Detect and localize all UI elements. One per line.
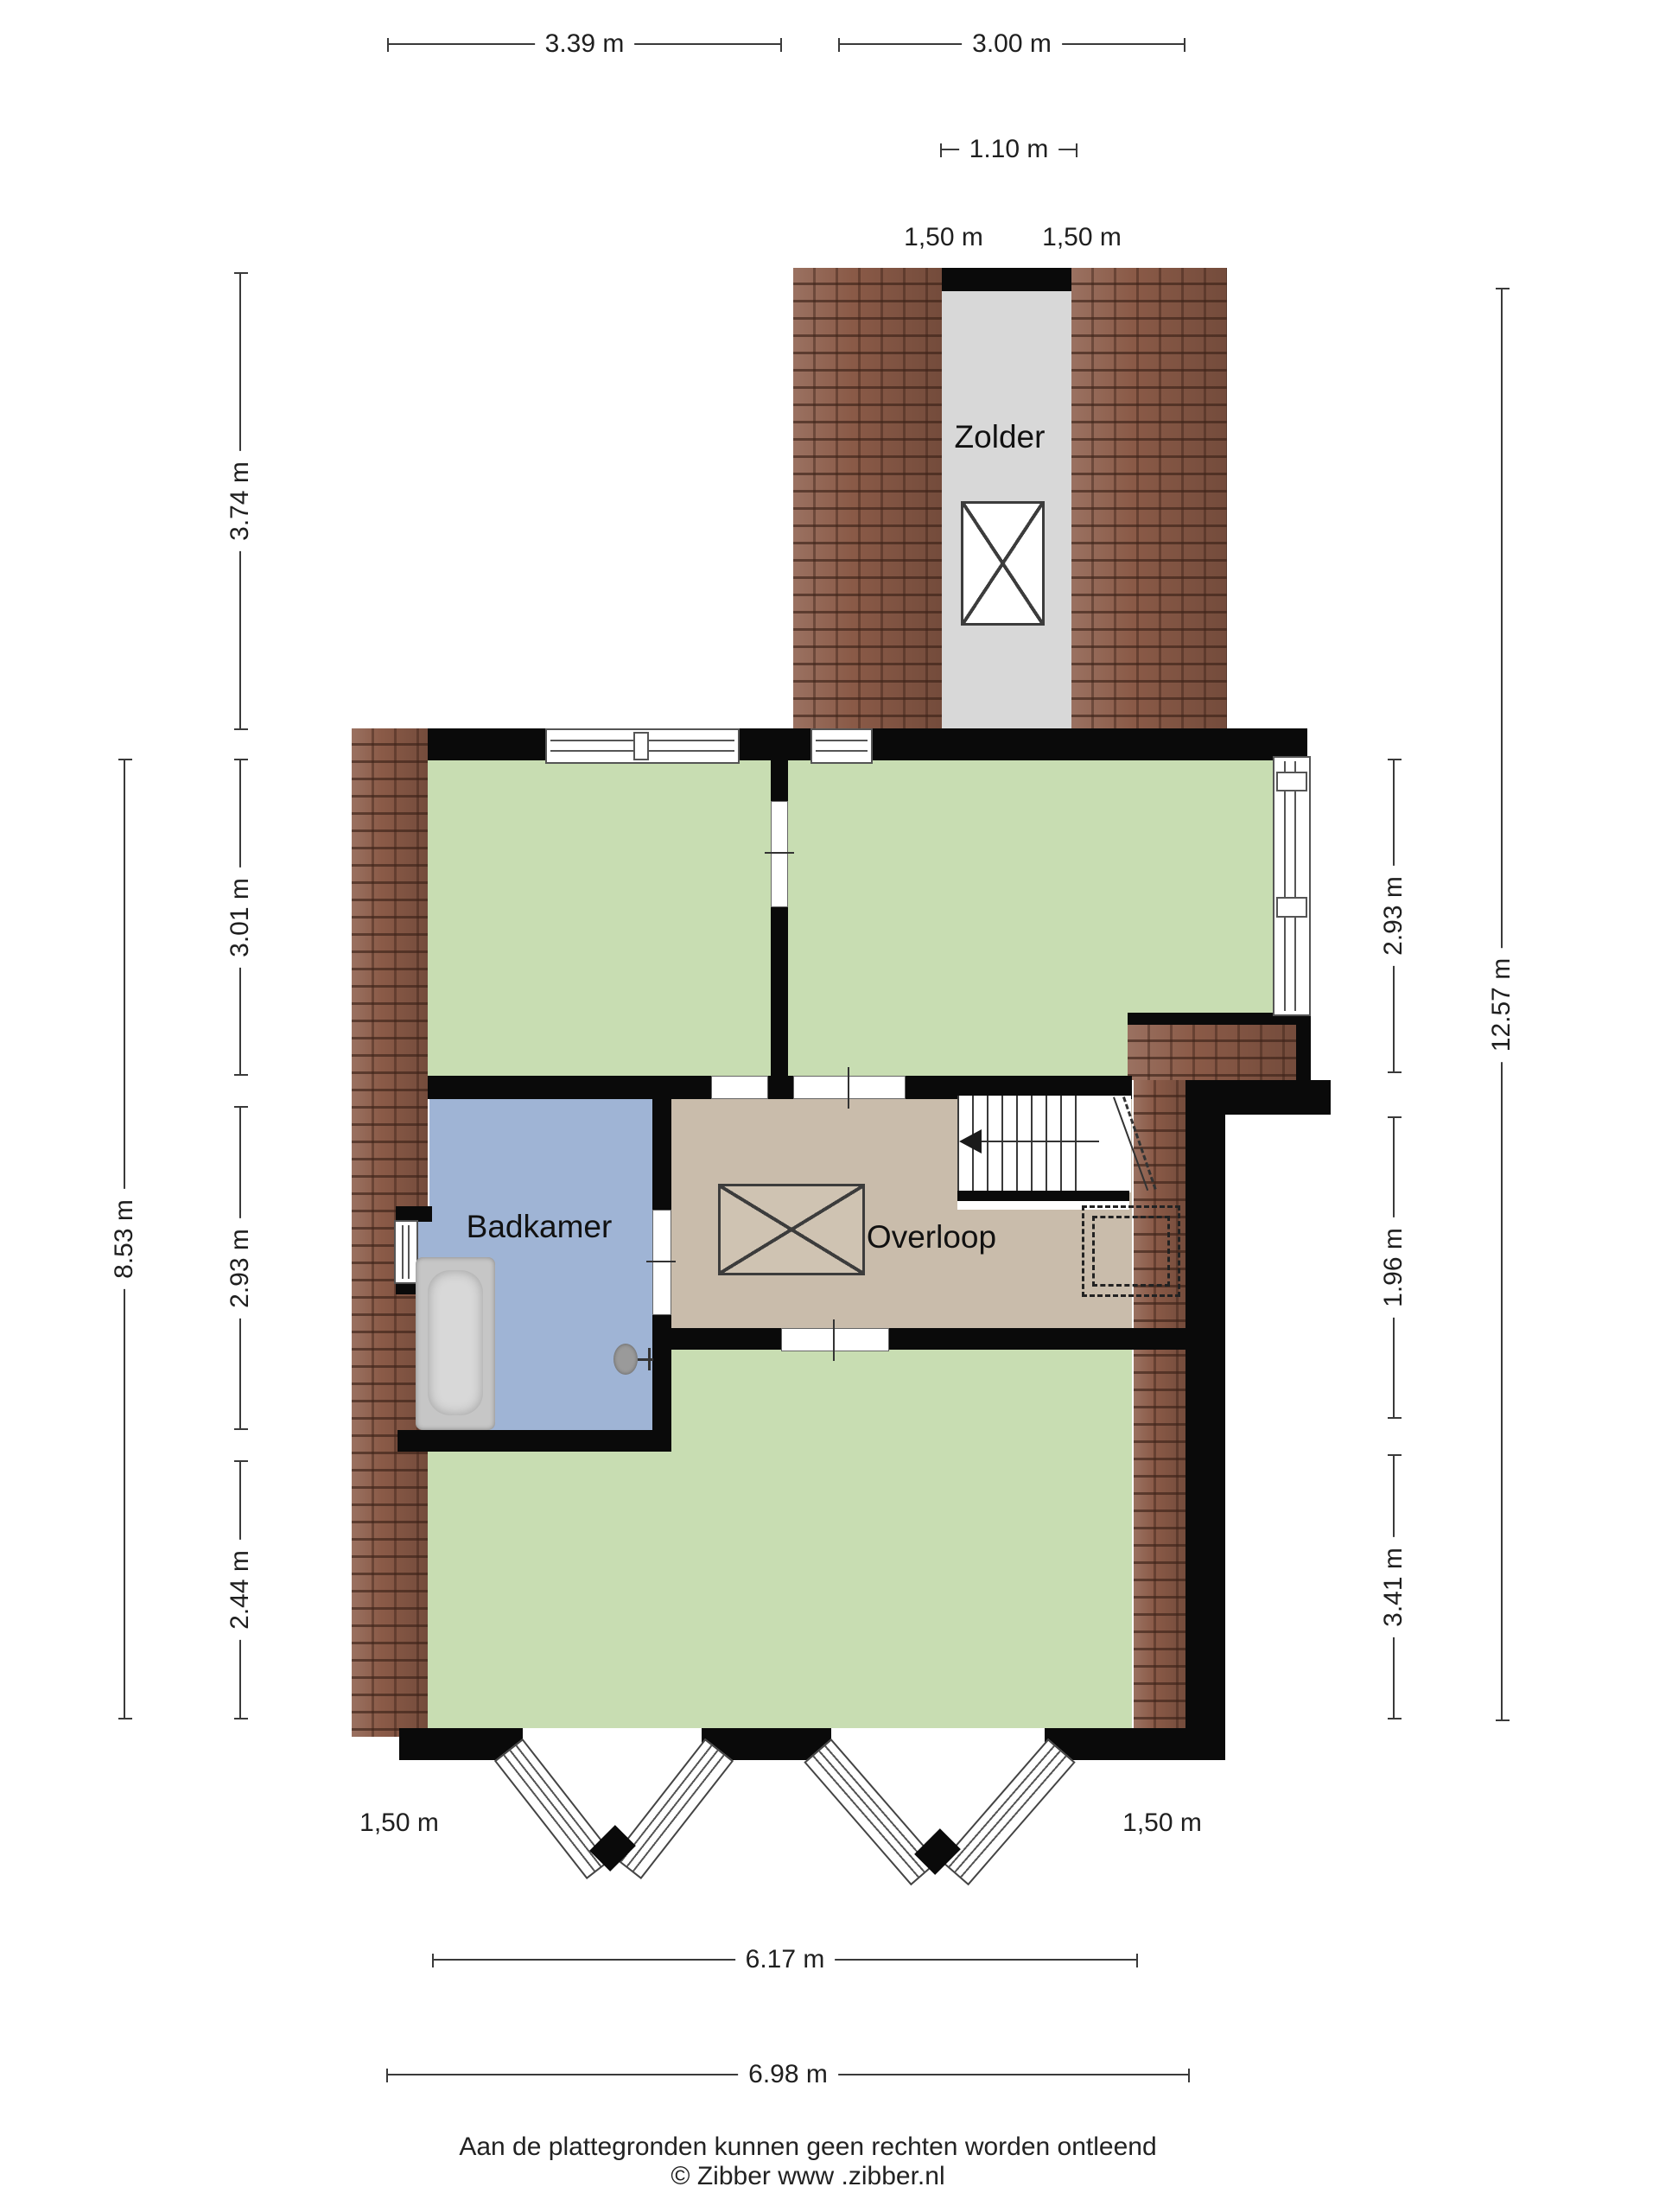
dim-label: 2.44 m xyxy=(226,1540,255,1640)
roof-zolder-right xyxy=(1071,268,1227,730)
dim-label: 3.74 m xyxy=(226,451,255,551)
wall-badkamer-bottom xyxy=(397,1430,671,1452)
room-label-badkamer: Badkamer xyxy=(467,1209,613,1245)
wall-right-lower xyxy=(1185,1115,1225,1737)
dim-bottom-roof-left: 1,50 m xyxy=(359,1808,439,1838)
footer-copyright: © Zibber www .zibber.nl xyxy=(671,2162,944,2191)
skylight-x xyxy=(718,1184,865,1275)
room-bedroom-left xyxy=(428,759,771,1076)
door-tick xyxy=(765,852,794,854)
door-tick xyxy=(646,1261,676,1262)
dim-zolder-roof-left: 1,50 m xyxy=(904,223,983,252)
window-badkamer xyxy=(394,1220,418,1284)
dim-left-244: 2.44 m xyxy=(239,1460,241,1719)
dim-bottom-roof-right: 1,50 m xyxy=(1122,1808,1202,1838)
door-bedroom-left xyxy=(711,1076,768,1099)
footer-disclaimer: Aan de plattegronden kunnen geen rechten… xyxy=(459,2133,1156,2162)
roof-zolder-left xyxy=(793,268,942,730)
bathtub-inner xyxy=(428,1270,483,1415)
door-bedroom-bottom xyxy=(781,1328,889,1351)
dim-top-left: 3.39 m xyxy=(387,43,782,45)
dim-left-293: 2.93 m xyxy=(239,1106,241,1430)
dim-label: 8.53 m xyxy=(110,1189,139,1289)
dim-left-374: 3.74 m xyxy=(239,272,241,730)
dim-label: 2.93 m xyxy=(226,1218,255,1319)
window-right-tall xyxy=(1273,756,1311,1016)
washbasin-tap-cross xyxy=(648,1348,651,1370)
dim-zolder-width: 1.10 m xyxy=(940,149,1077,150)
roof-notch-band xyxy=(1128,1025,1296,1080)
window-top-small xyxy=(810,728,873,764)
wall-step-out xyxy=(1185,1080,1331,1115)
dim-label: 3.01 m xyxy=(226,868,255,968)
wall-overloop-bottom xyxy=(671,1328,1225,1350)
dim-label: 6.17 m xyxy=(735,1945,836,1974)
stairs-direction-line xyxy=(981,1141,1099,1142)
door-tick xyxy=(833,1319,835,1361)
window-mullion xyxy=(1276,772,1307,791)
window-mullion xyxy=(633,732,649,760)
dim-bottom-698: 6.98 m xyxy=(386,2074,1190,2075)
dim-left-outer: 8.53 m xyxy=(124,759,125,1719)
dim-label: 6.98 m xyxy=(738,2060,838,2089)
stairs-base-wall xyxy=(957,1191,1129,1201)
dim-right-outer: 12.57 m xyxy=(1501,288,1503,1721)
stairs-direction-arrow xyxy=(959,1129,982,1154)
wall-notch-right xyxy=(1296,1013,1311,1080)
bay-window-left-b xyxy=(613,1738,734,1879)
dim-label: 1.10 m xyxy=(959,135,1059,164)
washbasin xyxy=(613,1344,638,1375)
dim-label: 3.39 m xyxy=(535,29,635,59)
dim-label: 3.00 m xyxy=(962,29,1062,59)
dim-left-301: 3.01 m xyxy=(239,759,241,1076)
dim-right-293: 2.93 m xyxy=(1393,759,1395,1073)
dim-label: 12.57 m xyxy=(1487,947,1516,1061)
attic-hatch-x xyxy=(961,501,1045,626)
room-label-zolder: Zolder xyxy=(955,419,1046,455)
door-tick xyxy=(848,1067,849,1109)
bay-window-right-a xyxy=(804,1738,938,1885)
dim-label: 1.96 m xyxy=(1379,1217,1408,1318)
door-badkamer xyxy=(652,1210,671,1315)
wall-bottom-right xyxy=(1045,1728,1225,1760)
room-label-overloop: Overloop xyxy=(867,1219,996,1255)
floorplan-canvas: 3.39 m 3.00 m 1.10 m 1,50 m 1,50 m 8.53 … xyxy=(0,0,1659,2212)
dim-label: 3.41 m xyxy=(1379,1537,1408,1637)
wall-zolder-top xyxy=(942,268,1071,291)
door-bedroom-right xyxy=(793,1076,906,1099)
window-mullion xyxy=(1276,897,1307,918)
dim-right-341: 3.41 m xyxy=(1393,1454,1395,1719)
dashed-kneewall-inner xyxy=(1092,1216,1170,1287)
dim-bottom-617: 6.17 m xyxy=(432,1959,1138,1961)
dim-label: 2.93 m xyxy=(1379,866,1408,966)
dim-zolder-roof-right: 1,50 m xyxy=(1042,223,1122,252)
door-between-bedrooms xyxy=(771,801,788,907)
dim-right-196: 1.96 m xyxy=(1393,1116,1395,1419)
bay-window-right-b xyxy=(941,1738,1076,1885)
dim-top-right: 3.00 m xyxy=(838,43,1185,45)
washbasin-tap xyxy=(638,1358,653,1361)
